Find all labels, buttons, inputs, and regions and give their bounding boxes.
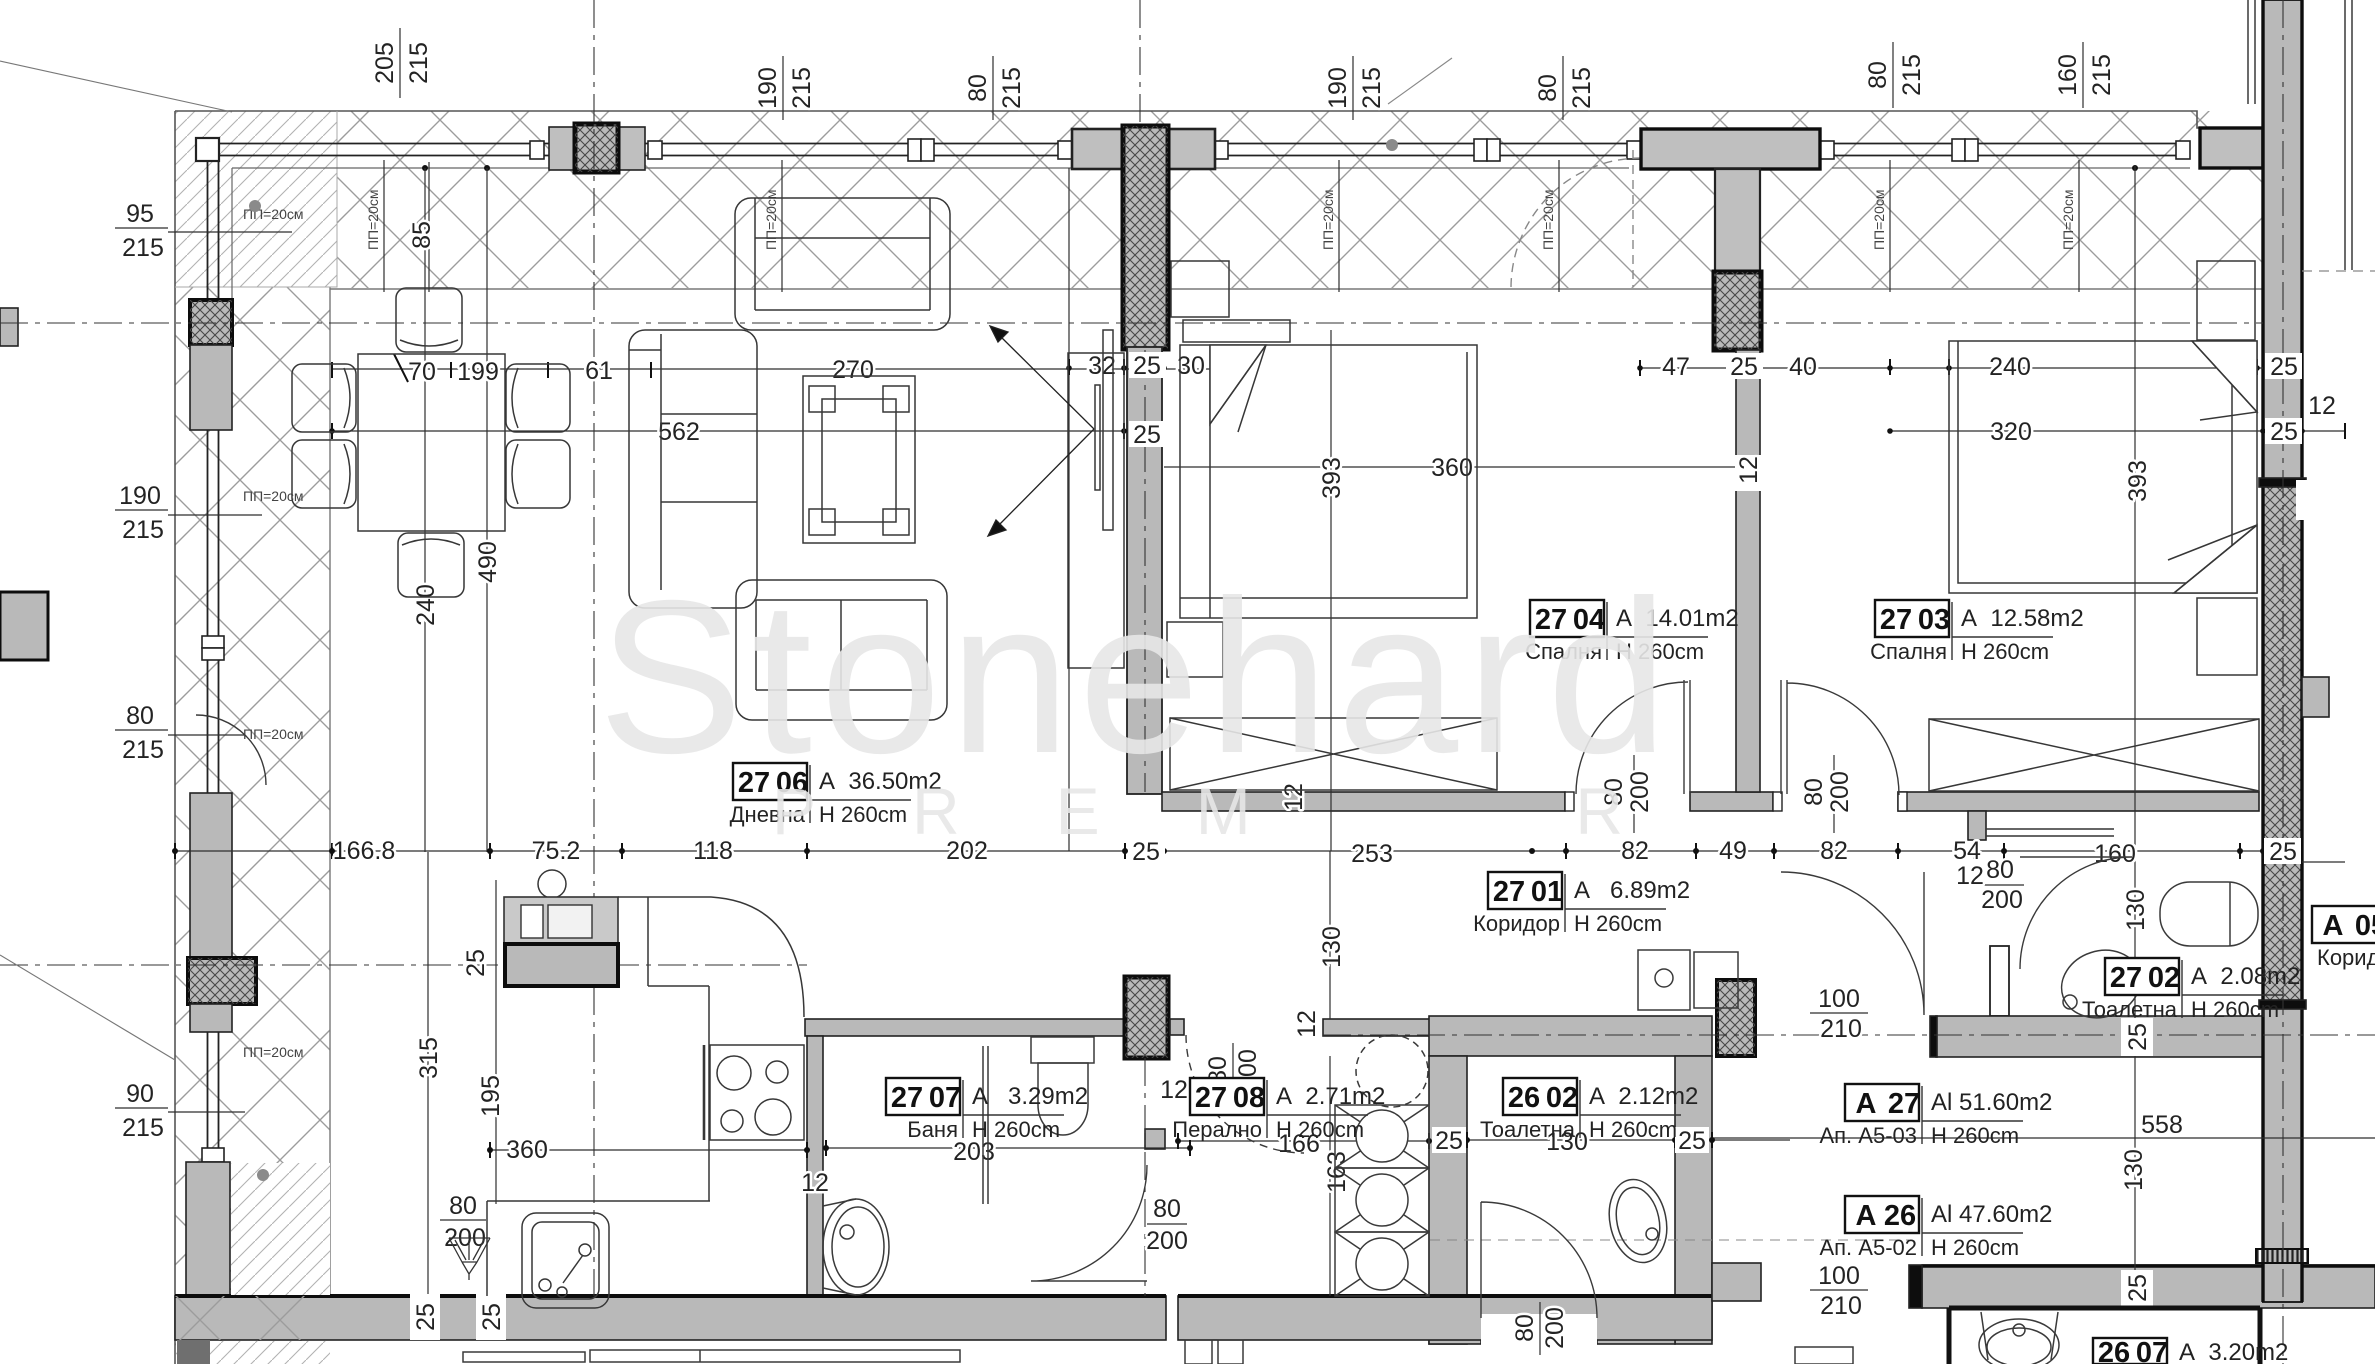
svg-text:200: 200 [1541,1307,1569,1349]
svg-text:215: 215 [998,67,1026,109]
svg-text:A 2.08m2: A 2.08m2 [2191,963,2300,990]
svg-text:215: 215 [122,736,164,764]
svg-text:05: 05 [2355,910,2375,942]
svg-text:27: 27 [1880,604,1912,636]
svg-text:H 260cm: H 260cm [1574,911,1662,936]
svg-text:Перално: Перално [1172,1117,1262,1142]
svg-text:Спалня: Спалня [1870,639,1947,664]
svg-text:27: 27 [1195,1082,1227,1114]
svg-text:215: 215 [1568,67,1596,109]
svg-text:01: 01 [1531,876,1563,908]
svg-text:H 260cm: H 260cm [2191,997,2279,1022]
svg-text:61: 61 [585,357,613,385]
svg-text:490: 490 [474,541,502,583]
svg-text:210: 210 [1820,1015,1862,1043]
svg-text:26: 26 [1508,1082,1540,1114]
svg-text:25: 25 [1730,353,1758,381]
svg-text:A 2.71m2: A 2.71m2 [1276,1083,1385,1110]
svg-text:25: 25 [2270,353,2298,381]
svg-text:H 260cm: H 260cm [1961,639,2049,664]
svg-text:12: 12 [801,1169,829,1197]
svg-text:Коридор: Коридор [1473,911,1560,936]
svg-text:25: 25 [1435,1127,1463,1155]
svg-text:25: 25 [2124,1023,2152,1051]
svg-text:26: 26 [2098,1337,2130,1364]
svg-text:25: 25 [462,949,490,977]
svg-text:200: 200 [1146,1227,1188,1255]
svg-text:26: 26 [1884,1200,1916,1232]
svg-text:215: 215 [122,234,164,262]
svg-text:25: 25 [1678,1127,1706,1155]
svg-text:H 260cm: H 260cm [1276,1117,1364,1142]
svg-text:A: A [1856,1200,1877,1232]
svg-text:ПП=20см: ПП=20см [243,726,304,742]
svg-text:200: 200 [1981,886,2023,914]
svg-text:80: 80 [1511,1314,1539,1342]
svg-text:ПП=20см: ПП=20см [1540,190,1556,251]
svg-text:H 260cm: H 260cm [972,1117,1060,1142]
svg-text:70: 70 [408,358,436,386]
svg-text:100: 100 [1818,1262,1860,1290]
svg-text:393: 393 [1318,457,1346,499]
svg-text:100: 100 [1818,985,1860,1013]
svg-text:12: 12 [2308,392,2336,420]
svg-text:130: 130 [2120,1149,2148,1191]
svg-text:Al 51.60m2: Al 51.60m2 [1931,1089,2052,1116]
svg-text:25: 25 [2124,1274,2152,1302]
svg-text:ПП=20см: ПП=20см [243,1044,304,1060]
svg-text:32: 32 [1088,352,1116,380]
svg-text:30: 30 [1177,352,1205,380]
svg-text:07: 07 [929,1082,961,1114]
svg-text:A 12.58m2: A 12.58m2 [1961,605,2084,632]
svg-text:A 2.12m2: A 2.12m2 [1589,1083,1698,1110]
svg-text:195: 195 [477,1075,505,1117]
svg-text:A: A [1856,1088,1877,1120]
svg-text:80: 80 [449,1192,477,1220]
svg-text:215: 215 [122,1114,164,1142]
svg-text:315: 315 [415,1037,443,1079]
svg-text:215: 215 [788,67,816,109]
svg-text:27: 27 [2110,962,2142,994]
svg-text:215: 215 [1898,54,1926,96]
svg-text:27: 27 [891,1082,923,1114]
svg-text:12: 12 [1160,1076,1188,1104]
svg-text:215: 215 [1358,67,1386,109]
svg-text:Тоалетна: Тоалетна [2082,997,2178,1022]
svg-text:393: 393 [2124,460,2152,502]
svg-text:82: 82 [1820,837,1848,865]
svg-text:205: 205 [371,42,399,84]
svg-text:A 3.20m2: A 3.20m2 [2179,1339,2288,1364]
svg-text:H 260cm: H 260cm [1589,1117,1677,1142]
svg-text:27: 27 [1493,876,1525,908]
svg-text:190: 190 [754,67,782,109]
svg-text:25: 25 [1133,352,1161,380]
svg-text:A 3.29m2: A 3.29m2 [972,1083,1088,1110]
svg-text:PREM R: PREM R [772,774,1719,848]
svg-text:A: A [2323,910,2344,942]
svg-text:40: 40 [1789,353,1817,381]
svg-text:A 6.89m2: A 6.89m2 [1574,877,1690,904]
svg-text:ПП=20см: ПП=20см [365,190,381,251]
svg-text:H 260cm: H 260cm [1931,1123,2019,1148]
svg-text:320: 320 [1990,418,2032,446]
svg-text:ПП=20см: ПП=20см [1871,190,1887,251]
svg-text:49: 49 [1719,837,1747,865]
svg-text:190: 190 [1324,67,1352,109]
svg-text:199: 199 [457,358,499,386]
svg-text:08: 08 [1233,1082,1265,1114]
svg-text:12: 12 [1956,862,1984,890]
svg-text:118: 118 [693,837,733,865]
svg-text:95: 95 [126,200,154,228]
svg-text:80: 80 [1153,1195,1181,1223]
svg-text:25: 25 [2270,418,2298,446]
svg-text:Ап. A5-03: Ап. A5-03 [1819,1123,1917,1148]
svg-text:12: 12 [1735,456,1763,484]
svg-text:75.2: 75.2 [532,837,581,865]
svg-text:ПП=20см: ПП=20см [243,488,304,504]
svg-text:02: 02 [1546,1082,1578,1114]
svg-text:03: 03 [1918,604,1950,636]
svg-text:190: 190 [119,482,161,510]
svg-text:80: 80 [1864,61,1892,89]
svg-text:47: 47 [1662,353,1690,381]
svg-text:27: 27 [1888,1088,1920,1120]
svg-text:02: 02 [2148,962,2180,994]
svg-text:215: 215 [122,516,164,544]
svg-text:160: 160 [2094,840,2136,868]
svg-text:Баня: Баня [907,1117,958,1142]
svg-text:Ап. A5-02: Ап. A5-02 [1819,1235,1917,1260]
svg-text:07: 07 [2136,1337,2168,1364]
svg-text:90: 90 [126,1080,154,1108]
svg-text:130: 130 [1318,926,1346,968]
svg-text:ПП=20см: ПП=20см [2060,190,2076,251]
svg-text:163: 163 [1323,1151,1351,1193]
svg-text:H 260cm: H 260cm [1931,1235,2019,1260]
svg-text:80: 80 [126,702,154,730]
svg-text:166.8: 166.8 [333,837,396,865]
svg-text:215: 215 [2088,54,2116,96]
svg-text:240: 240 [412,584,440,626]
svg-text:80: 80 [964,74,992,102]
svg-text:360: 360 [506,1136,548,1164]
svg-text:200: 200 [1826,771,1854,813]
svg-text:Al 47.60m2: Al 47.60m2 [1931,1201,2052,1228]
svg-text:210: 210 [1820,1292,1862,1320]
svg-text:240: 240 [1989,353,2031,381]
svg-text:130: 130 [2122,889,2150,931]
svg-text:80: 80 [1534,74,1562,102]
svg-text:25: 25 [2269,838,2297,866]
svg-text:25: 25 [412,1303,440,1331]
svg-text:80: 80 [1800,778,1828,806]
svg-text:80: 80 [1986,856,2014,884]
svg-text:85: 85 [408,221,436,249]
svg-text:12: 12 [1293,1010,1321,1038]
svg-text:270: 270 [832,356,874,384]
svg-text:562: 562 [658,418,700,446]
svg-text:160: 160 [2054,54,2082,96]
svg-text:Коридор: Коридор [2317,945,2375,970]
svg-text:25: 25 [1133,421,1161,449]
svg-text:54: 54 [1953,837,1981,865]
svg-text:ПП=20см: ПП=20см [1320,190,1336,251]
svg-text:558: 558 [2141,1111,2183,1139]
svg-text:Тоалетна: Тоалетна [1480,1117,1576,1142]
svg-text:Stonehard: Stonehard [598,556,1676,799]
svg-text:215: 215 [405,42,433,84]
svg-text:25: 25 [478,1303,506,1331]
